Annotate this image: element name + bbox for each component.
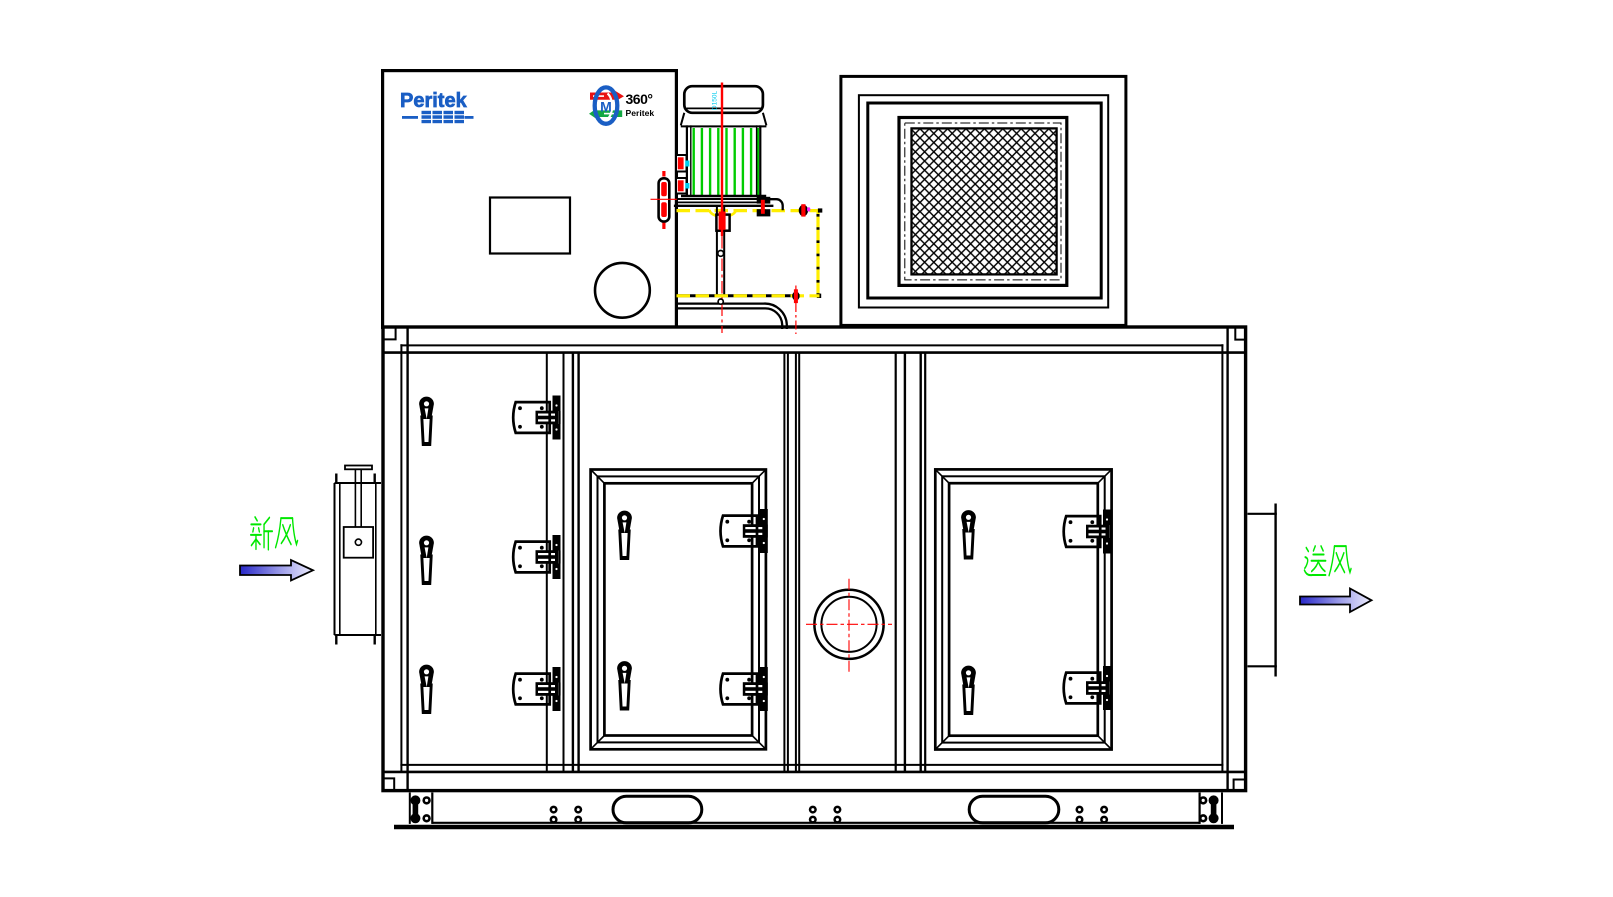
svg-text:M: M	[600, 99, 612, 115]
svg-text:360°: 360°	[626, 91, 653, 107]
svg-text:D150L: D150L	[711, 91, 718, 111]
svg-text:Peritek: Peritek	[400, 90, 468, 112]
svg-text:Peritek: Peritek	[626, 108, 655, 118]
